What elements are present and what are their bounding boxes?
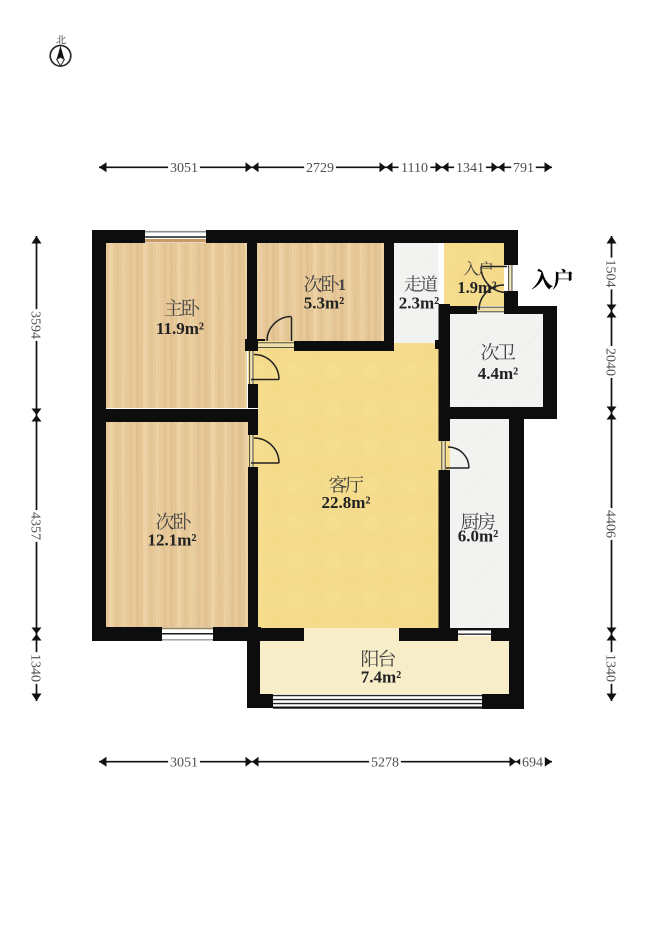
svg-text:1340: 1340 bbox=[603, 654, 618, 682]
svg-text:4357: 4357 bbox=[28, 512, 43, 540]
svg-text:2040: 2040 bbox=[603, 348, 618, 376]
svg-text:4.4m²: 4.4m² bbox=[478, 364, 519, 383]
svg-text:2.3m²: 2.3m² bbox=[399, 294, 440, 313]
svg-text:7.4m²: 7.4m² bbox=[361, 668, 402, 687]
svg-text:1: 1 bbox=[338, 277, 346, 294]
svg-text:22.8m²: 22.8m² bbox=[321, 493, 370, 512]
svg-text:3051: 3051 bbox=[170, 161, 198, 176]
svg-text:6.0m²: 6.0m² bbox=[458, 527, 499, 546]
svg-text:11.9m²: 11.9m² bbox=[156, 319, 204, 338]
svg-text:3051: 3051 bbox=[170, 756, 198, 771]
svg-text:12.1m²: 12.1m² bbox=[147, 531, 196, 550]
svg-text:1110: 1110 bbox=[401, 161, 428, 176]
svg-text:1341: 1341 bbox=[456, 161, 484, 176]
svg-text:1340: 1340 bbox=[28, 654, 43, 682]
svg-text:5278: 5278 bbox=[371, 756, 399, 771]
svg-text:5.3m²: 5.3m² bbox=[304, 294, 345, 313]
svg-text:3594: 3594 bbox=[28, 311, 43, 339]
svg-text:791: 791 bbox=[513, 161, 534, 176]
svg-text:1.9m²: 1.9m² bbox=[457, 278, 496, 297]
svg-text:4406: 4406 bbox=[603, 510, 618, 538]
svg-text:2729: 2729 bbox=[306, 161, 334, 176]
svg-text:1504: 1504 bbox=[603, 260, 618, 288]
svg-text:694: 694 bbox=[522, 756, 543, 771]
